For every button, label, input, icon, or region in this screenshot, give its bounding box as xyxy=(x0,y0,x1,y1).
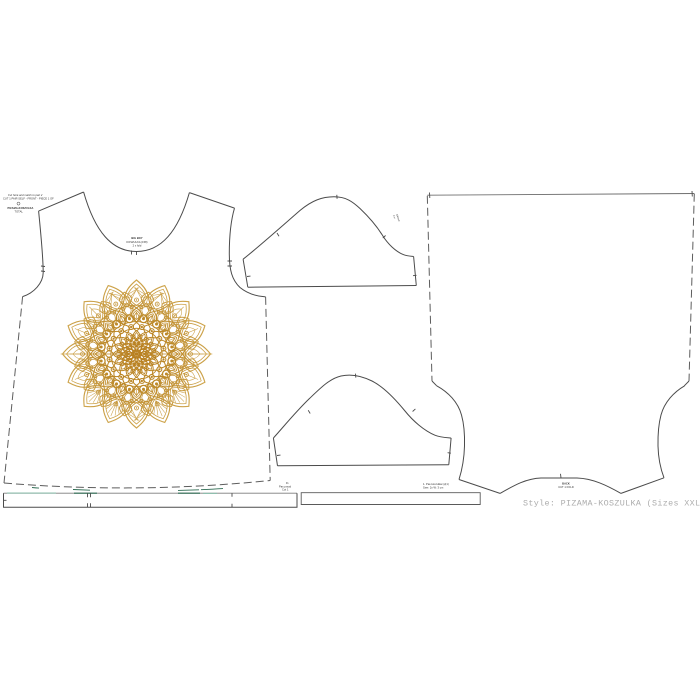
svg-text:KOSZULKA (158): KOSZULKA (158) xyxy=(126,240,147,244)
svg-text:BACK: BACK xyxy=(562,482,570,486)
svg-text:Cut here and match to part 2: Cut here and match to part 2 xyxy=(8,193,43,197)
svg-text:CUT 1 FOLD: CUT 1 FOLD xyxy=(558,485,574,489)
svg-text:BIG BOY: BIG BOY xyxy=(131,236,143,240)
svg-text:Style: PIZAMA-KOSZULKA (Sizes: Style: PIZAMA-KOSZULKA (Sizes XXL xyxy=(523,499,700,509)
svg-text:2 x fold: 2 x fold xyxy=(133,244,142,248)
svg-text:CUT 1 PAIR SELF - FRONT - PIEC: CUT 1 PAIR SELF - FRONT - PIECE 1 OF xyxy=(3,197,54,201)
svg-text:TOTAL: TOTAL xyxy=(15,209,24,213)
svg-text:Szer. 2x W: 3 cm: Szer. 2x W: 3 cm xyxy=(423,485,443,489)
svg-text:Cut 1: Cut 1 xyxy=(282,488,289,492)
